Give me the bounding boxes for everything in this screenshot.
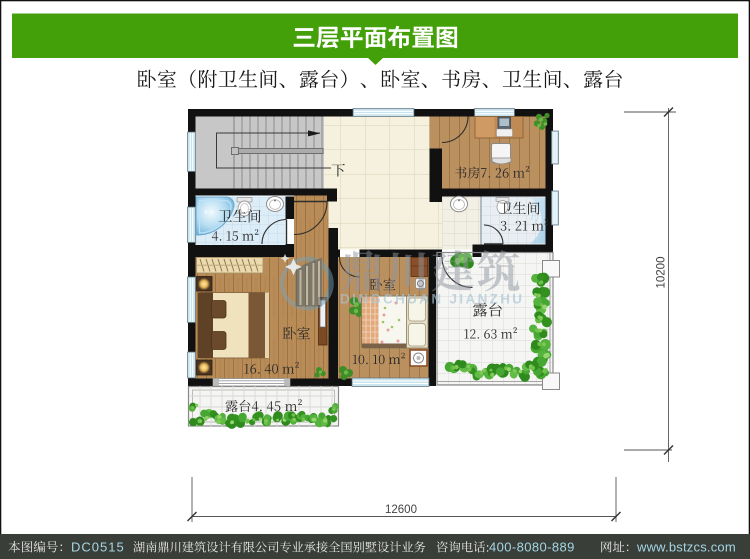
svg-text:www.bstzcs.com: www.bstzcs.com [636,540,736,555]
svg-text:DINGCHUAN JIANZHU: DINGCHUAN JIANZHU [340,292,524,307]
svg-text:12600: 12600 [385,504,417,516]
svg-text:400-8080-889: 400-8080-889 [489,540,575,555]
svg-text:10200: 10200 [656,257,668,289]
svg-text:DC0515: DC0515 [71,540,125,555]
